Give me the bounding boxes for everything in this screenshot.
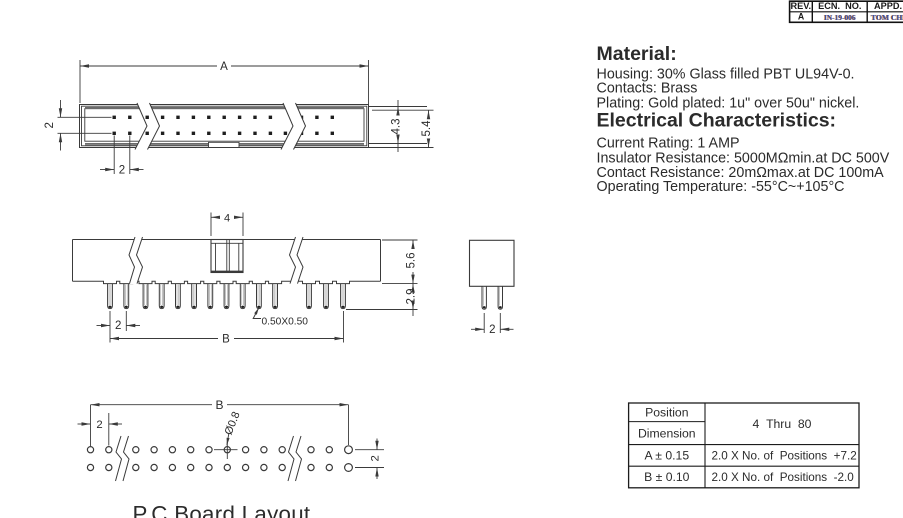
svg-text:4 Thru 80: 4 Thru 80 xyxy=(753,417,812,431)
svg-text:ECN. NO.: ECN. NO. xyxy=(818,1,861,11)
svg-text:Contacts: Brass: Contacts: Brass xyxy=(597,81,698,97)
svg-text:Position: Position xyxy=(645,406,688,420)
svg-text:Dimension: Dimension xyxy=(638,426,696,440)
svg-text:A: A xyxy=(798,12,805,22)
svg-text:A: A xyxy=(220,61,228,73)
svg-text:TOM CHEN: TOM CHEN xyxy=(871,13,903,22)
svg-text:0.50X0.50: 0.50X0.50 xyxy=(262,317,309,328)
svg-text:2: 2 xyxy=(44,122,56,128)
svg-text:REV.: REV. xyxy=(790,1,811,11)
svg-text:2: 2 xyxy=(119,165,125,177)
svg-text:2.0 X No. of Positions -2.0: 2.0 X No. of Positions -2.0 xyxy=(712,471,855,484)
svg-text:P.C.Board Layout: P.C.Board Layout xyxy=(133,502,311,518)
svg-text:B ± 0.10: B ± 0.10 xyxy=(644,470,690,484)
svg-text:A ± 0.15: A ± 0.15 xyxy=(644,448,689,462)
svg-text:2.9: 2.9 xyxy=(406,289,418,305)
svg-text:B: B xyxy=(215,398,223,412)
svg-text:2: 2 xyxy=(96,419,102,431)
svg-text:Operating Temperature: -55°C~+: Operating Temperature: -55°C~+105°C xyxy=(597,179,845,195)
svg-text:2.0 X No. of Positions +7.2: 2.0 X No. of Positions +7.2 xyxy=(712,449,857,462)
svg-text:APPD.: APPD. xyxy=(874,1,902,11)
svg-text:Material:: Material: xyxy=(597,43,677,65)
svg-text:5.4: 5.4 xyxy=(421,120,433,137)
svg-text:4.3: 4.3 xyxy=(391,119,403,135)
svg-text:2: 2 xyxy=(115,320,121,332)
svg-text:4: 4 xyxy=(224,213,230,225)
svg-text:IN-19-006: IN-19-006 xyxy=(824,13,856,22)
svg-text:B: B xyxy=(222,334,230,346)
svg-text:Ø0.8: Ø0.8 xyxy=(223,410,243,437)
svg-text:2: 2 xyxy=(370,455,382,461)
svg-text:Current Rating: 1 AMP: Current Rating: 1 AMP xyxy=(597,136,740,152)
svg-text:Electrical Characteristics:: Electrical Characteristics: xyxy=(597,110,837,132)
svg-text:2: 2 xyxy=(489,324,495,336)
svg-text:5.6: 5.6 xyxy=(406,253,418,269)
